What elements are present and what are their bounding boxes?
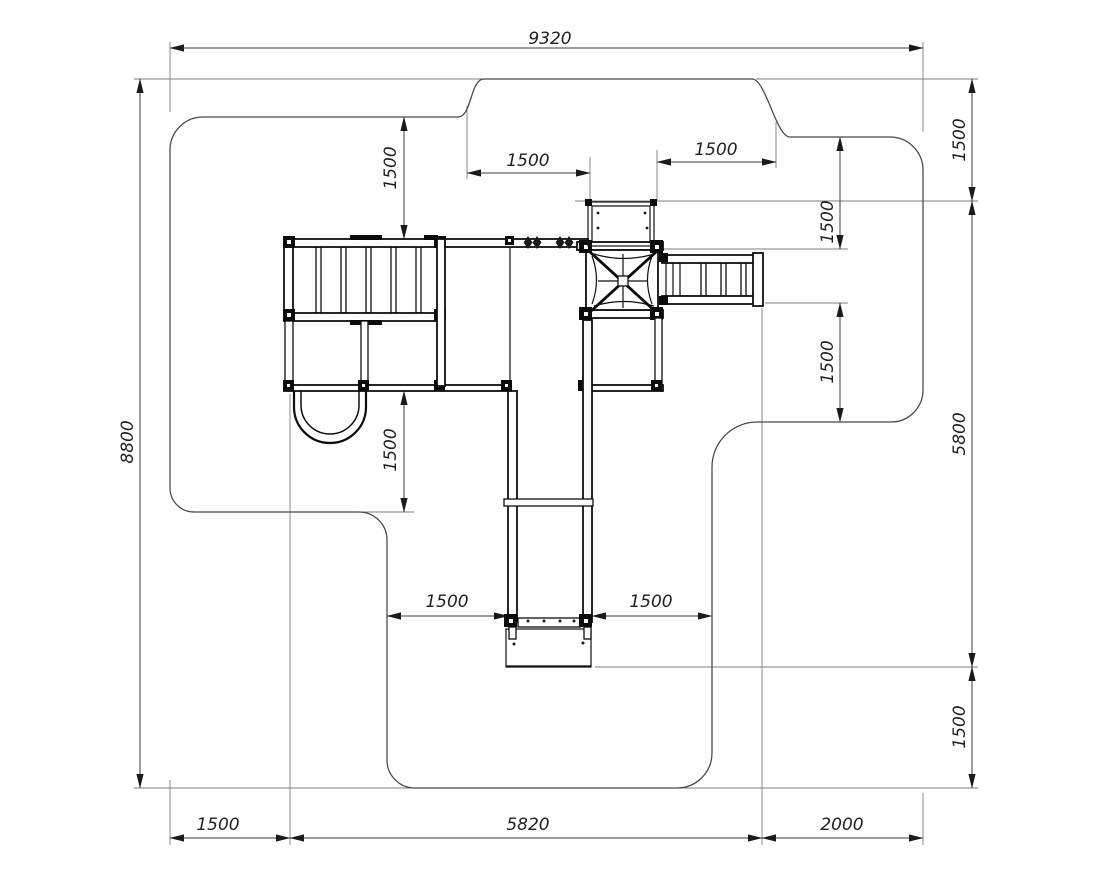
slide bbox=[504, 320, 593, 667]
drawing-page: 9320 8800 1500 5800 1500 1500 1500 1500 … bbox=[0, 0, 1110, 879]
dim-label-right-lower-clearance: 1500 bbox=[818, 340, 838, 383]
dim-label-slide-gap-right: 1500 bbox=[629, 592, 672, 612]
dim-label-bottom-left-offset: 1500 bbox=[196, 815, 239, 835]
dim-label-right-top-offset: 1500 bbox=[950, 118, 970, 161]
dim-label-top-clearance: 1500 bbox=[381, 146, 401, 189]
main-platform bbox=[437, 236, 588, 386]
dimension-labels: 9320 8800 1500 5800 1500 1500 1500 1500 … bbox=[118, 29, 970, 835]
dim-label-equipment-height: 5800 bbox=[950, 412, 970, 455]
dimension-lines bbox=[140, 48, 972, 838]
bridge-with-rungs bbox=[283, 235, 446, 325]
dim-label-top-gap-left: 1500 bbox=[506, 151, 549, 171]
dim-label-right-upper-clearance: 1500 bbox=[818, 200, 838, 243]
upper-platform bbox=[585, 199, 657, 246]
playground-plan-drawing: 9320 8800 1500 5800 1500 1500 1500 1500 … bbox=[0, 0, 1110, 879]
slide-exit-box bbox=[506, 629, 591, 667]
dim-label-zone-height: 8800 bbox=[118, 420, 138, 463]
lower-left-frame bbox=[283, 321, 512, 443]
dim-label-slide-gap-left: 1500 bbox=[425, 592, 468, 612]
extension-lines bbox=[134, 42, 978, 845]
dim-label-right-bottom-offset: 1500 bbox=[950, 705, 970, 748]
dim-label-zone-width: 9320 bbox=[528, 29, 571, 49]
safety-zone-outline bbox=[170, 79, 923, 788]
playground-structure bbox=[283, 199, 763, 667]
side-climber bbox=[659, 253, 763, 306]
dim-label-top-gap-right: 1500 bbox=[694, 140, 737, 160]
dim-label-bottom-right-offset: 2000 bbox=[820, 815, 863, 835]
dim-label-equipment-width: 5820 bbox=[506, 815, 549, 835]
dim-label-left-lower-clearance: 1500 bbox=[381, 428, 401, 471]
